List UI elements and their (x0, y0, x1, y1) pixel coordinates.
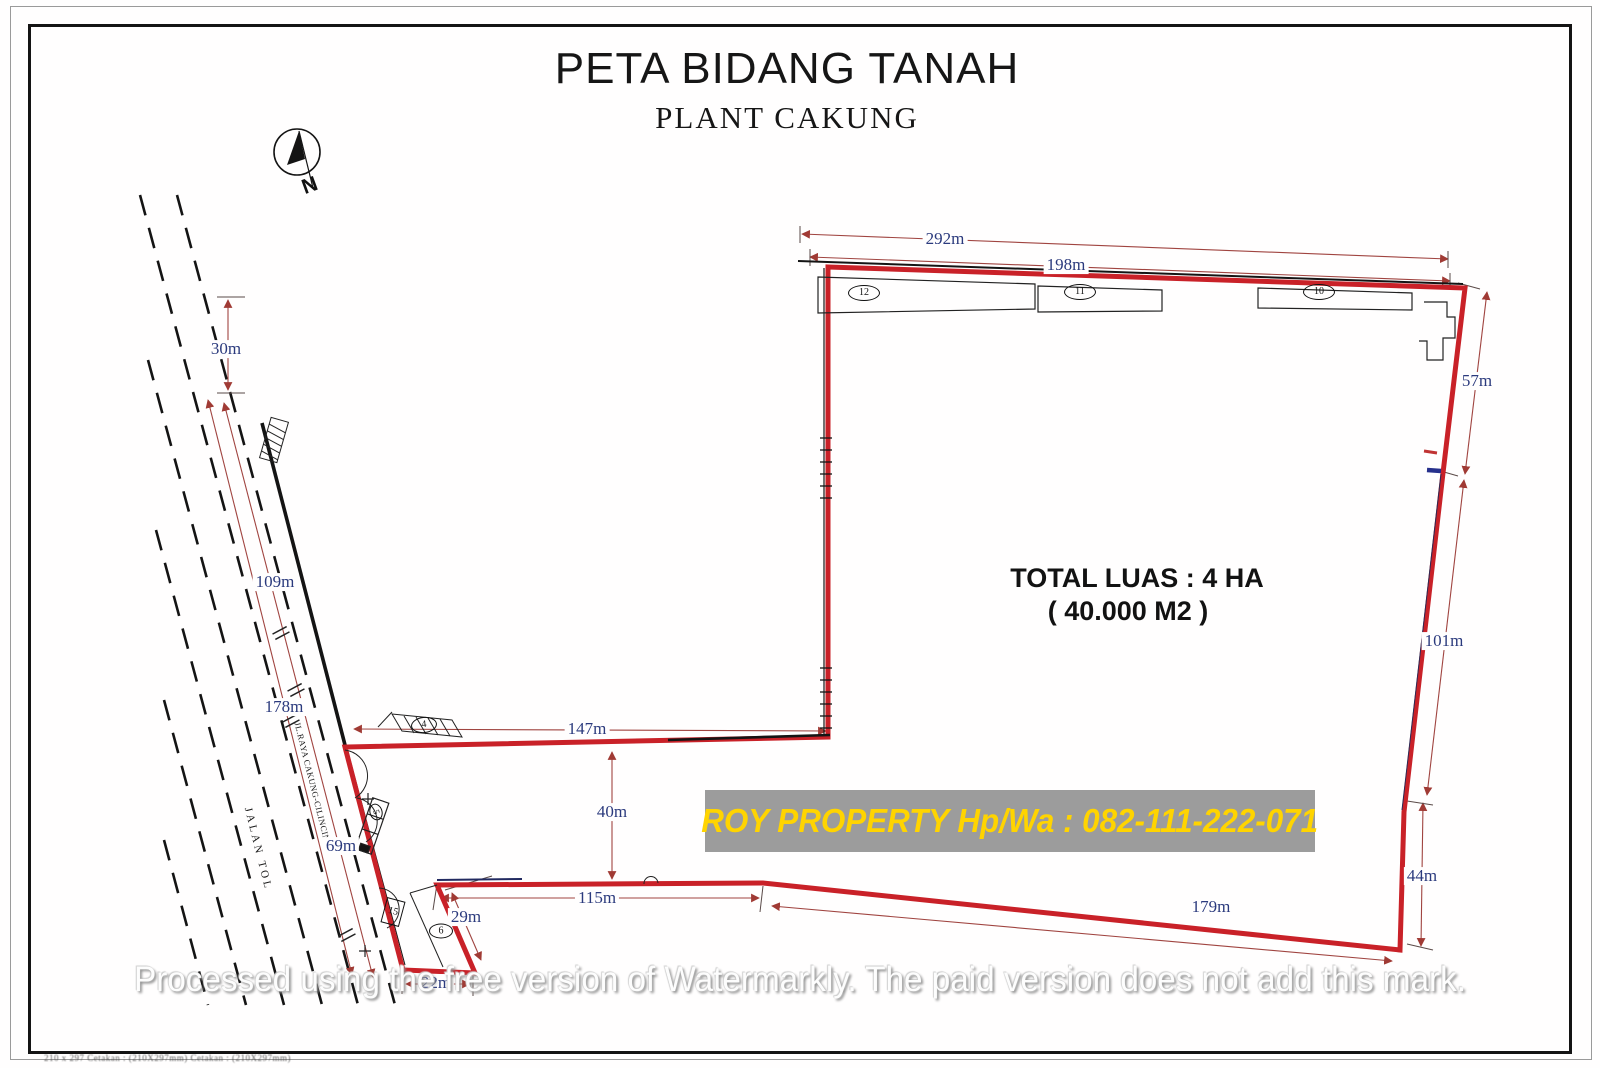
dim-label-198m: 198m (1044, 256, 1089, 274)
parcel-label-12: 12 (848, 285, 880, 301)
agent-banner: ROY PROPERTY Hp/Wa : 082-111-222-071 (705, 790, 1315, 852)
dim-label-101m: 101m (1422, 632, 1467, 650)
watermark-text: Processed using the free version of Wate… (40, 960, 1560, 1000)
parcel-label-10: 10 (1303, 284, 1335, 300)
page-title: PETA BIDANG TANAH (555, 44, 1019, 94)
dim-label-69m: 69m (323, 837, 359, 855)
dim-label-40m: 40m (594, 803, 630, 821)
parcel-label-11: 11 (1064, 284, 1096, 300)
dim-label-147m: 147m (565, 720, 610, 738)
map-frame (28, 24, 1572, 1054)
parcel-label-6: 6 (429, 924, 453, 939)
dim-label-292m: 292m (923, 230, 968, 248)
total-area-line1: TOTAL LUAS : 4 HA (1010, 563, 1264, 594)
land-plot-map: PETA BIDANG TANAH PLANT CAKUNG N TOTAL L… (0, 0, 1600, 1068)
print-fineprint: 210 x 297 Cetakan : (210X297mm) Cetakan … (44, 1053, 291, 1063)
dim-label-178m: 178m (262, 698, 307, 716)
dim-label-29m: 29m (448, 908, 484, 926)
dim-label-179m: 179m (1189, 898, 1234, 916)
page-subtitle: PLANT CAKUNG (655, 100, 919, 136)
dim-label-57m: 57m (1459, 372, 1495, 390)
dim-label-30m: 30m (208, 340, 244, 358)
agent-banner-text: ROY PROPERTY Hp/Wa : 082-111-222-071 (702, 802, 1319, 840)
dim-label-115m: 115m (575, 889, 619, 907)
total-area-line2: ( 40.000 M2 ) (1048, 596, 1209, 627)
dim-label-44m: 44m (1404, 867, 1440, 885)
dim-label-109m: 109m (253, 573, 298, 591)
